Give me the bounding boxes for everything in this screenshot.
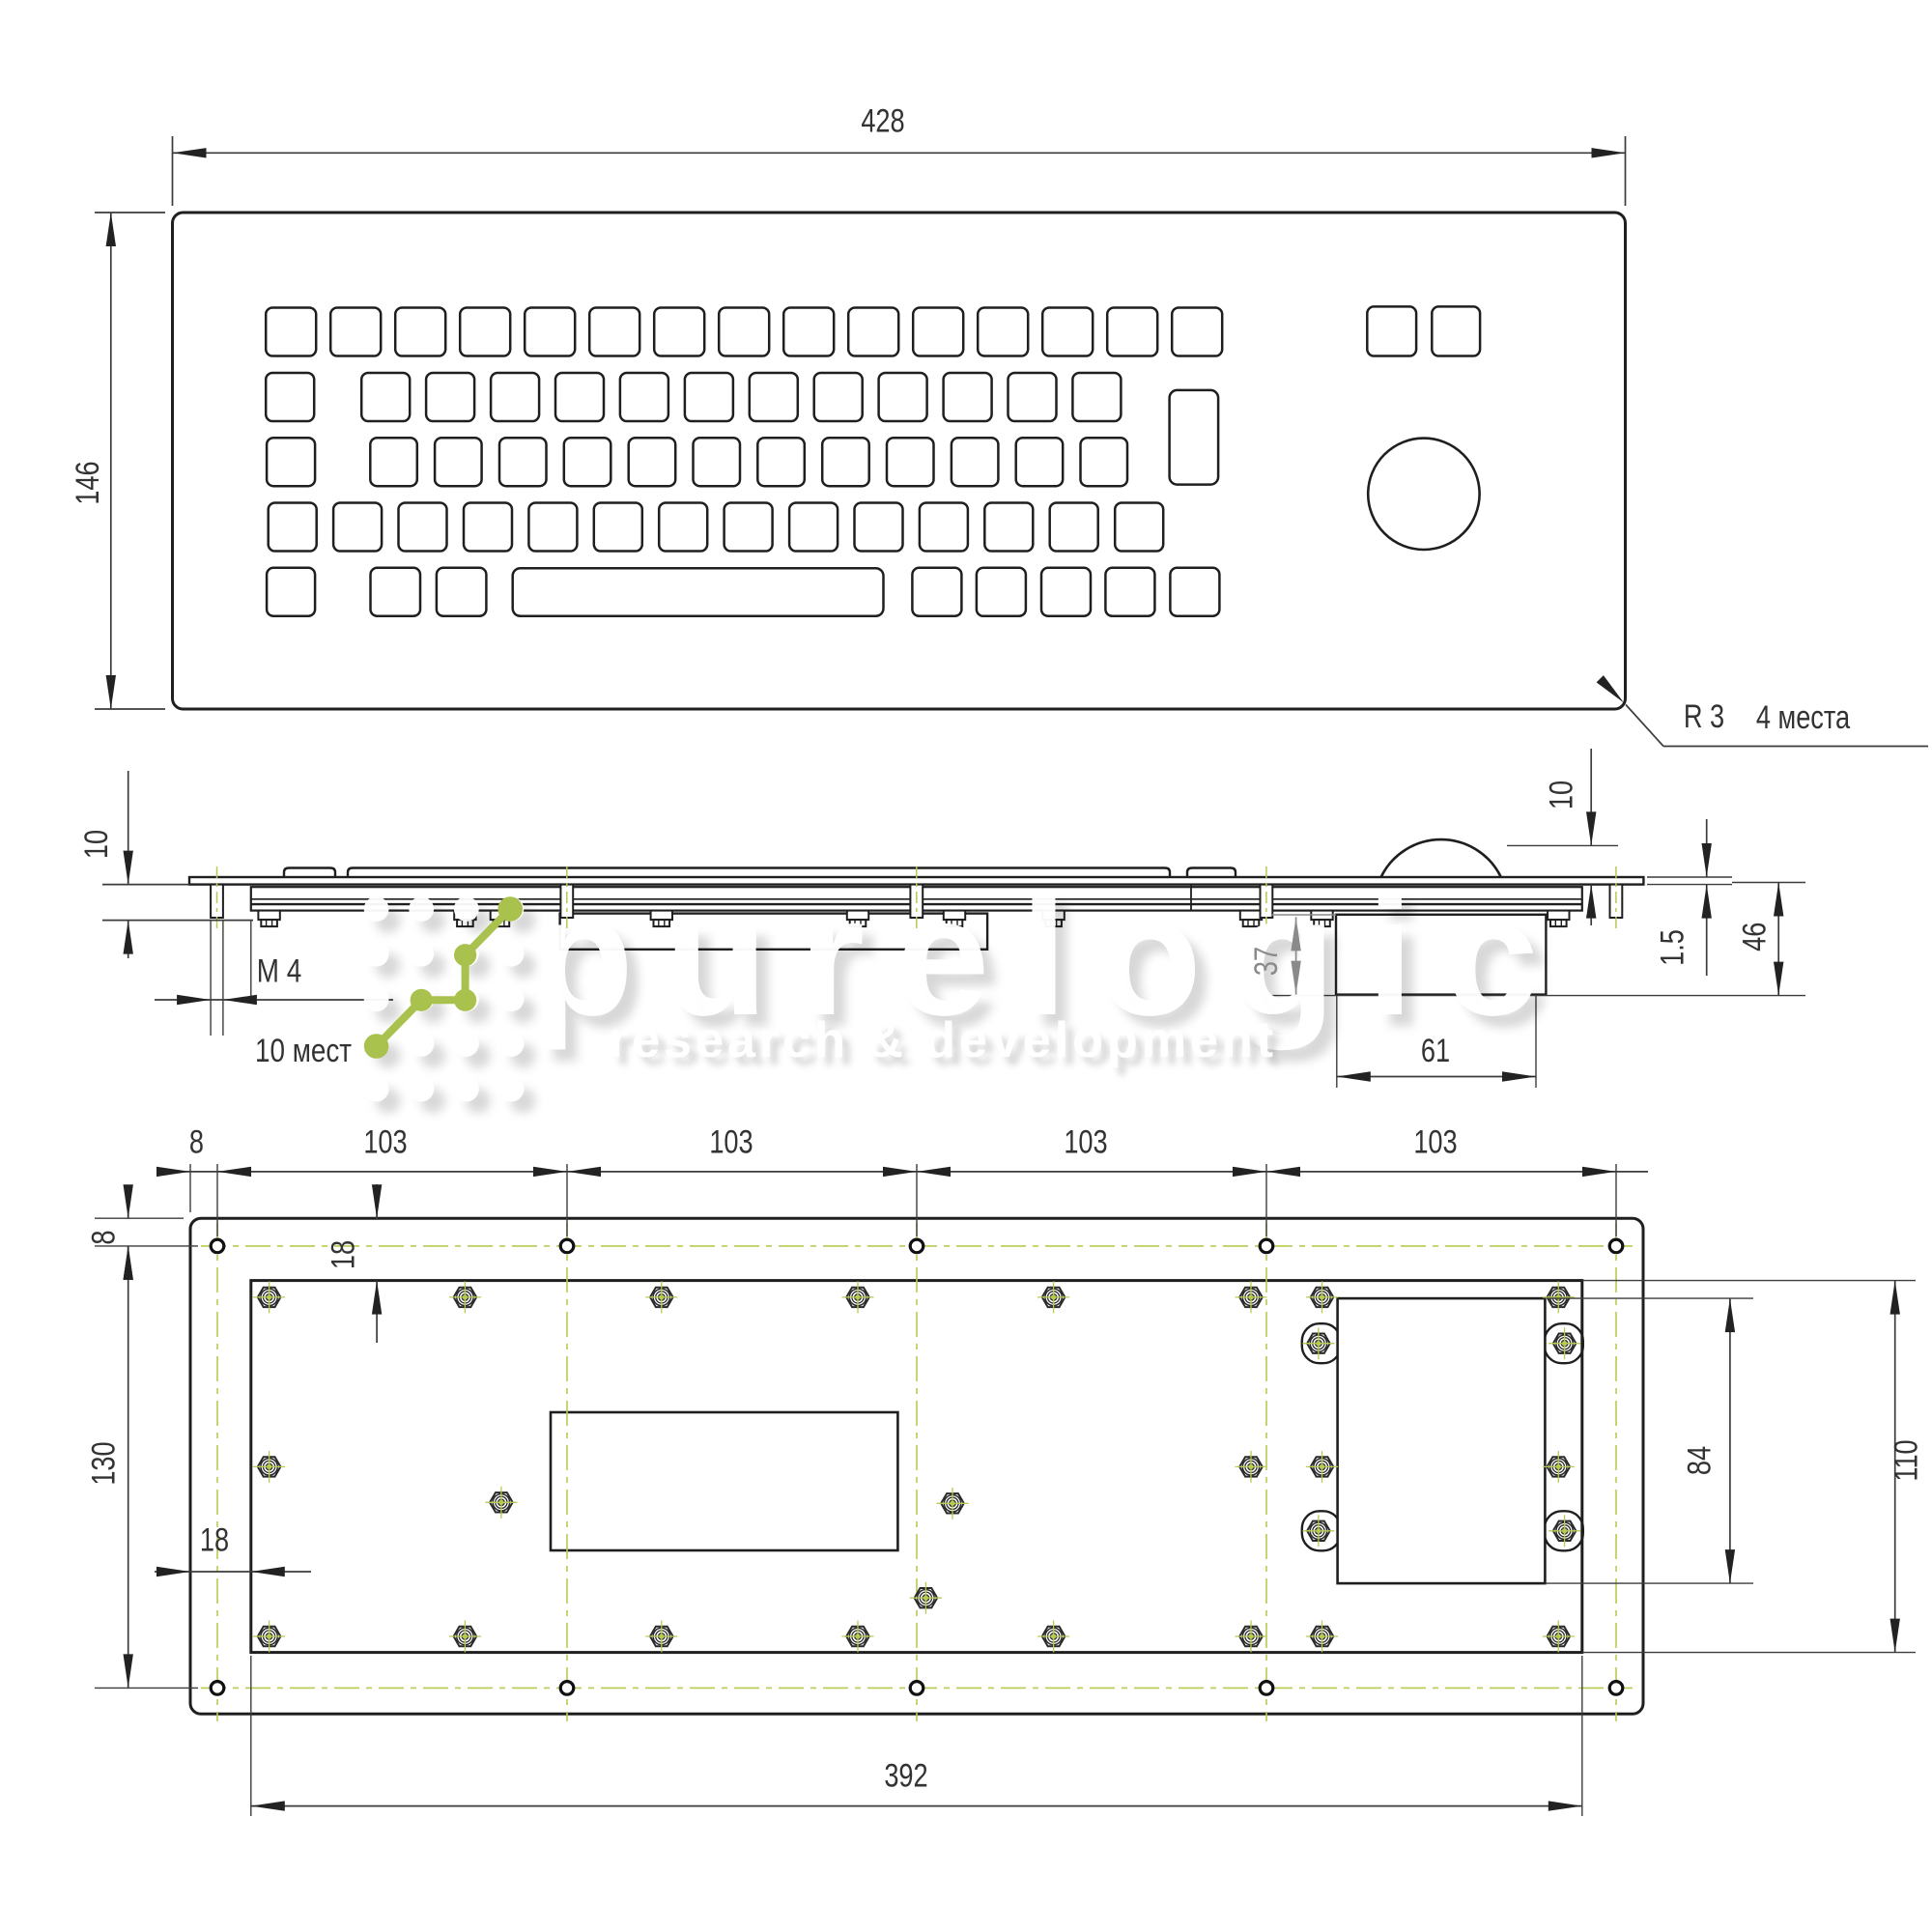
svg-text:8: 8 [85,1230,123,1244]
svg-text:18: 18 [325,1240,362,1269]
svg-text:130: 130 [85,1441,123,1485]
svg-text:428: 428 [861,102,904,140]
svg-text:research & development: research & development [609,1012,1277,1068]
svg-text:R 3: R 3 [1684,697,1724,735]
svg-text:84: 84 [1681,1446,1719,1475]
svg-text:46: 46 [1736,923,1774,951]
svg-text:10: 10 [77,830,115,859]
svg-text:10: 10 [1543,781,1580,809]
svg-text:1.5: 1.5 [1654,929,1691,966]
svg-text:103: 103 [1413,1123,1457,1161]
svg-text:18: 18 [200,1521,229,1559]
svg-text:37: 37 [1247,947,1285,976]
svg-text:110: 110 [1888,1439,1925,1481]
svg-text:M 4: M 4 [257,952,301,989]
svg-text:392: 392 [884,1757,927,1795]
svg-text:4 места: 4 места [1756,698,1851,736]
svg-text:103: 103 [363,1123,407,1161]
svg-text:103: 103 [709,1123,753,1161]
svg-text:146: 146 [69,461,106,504]
svg-text:10 мест: 10 мест [255,1032,352,1068]
svg-text:8: 8 [189,1123,204,1161]
svg-text:103: 103 [1064,1123,1107,1161]
